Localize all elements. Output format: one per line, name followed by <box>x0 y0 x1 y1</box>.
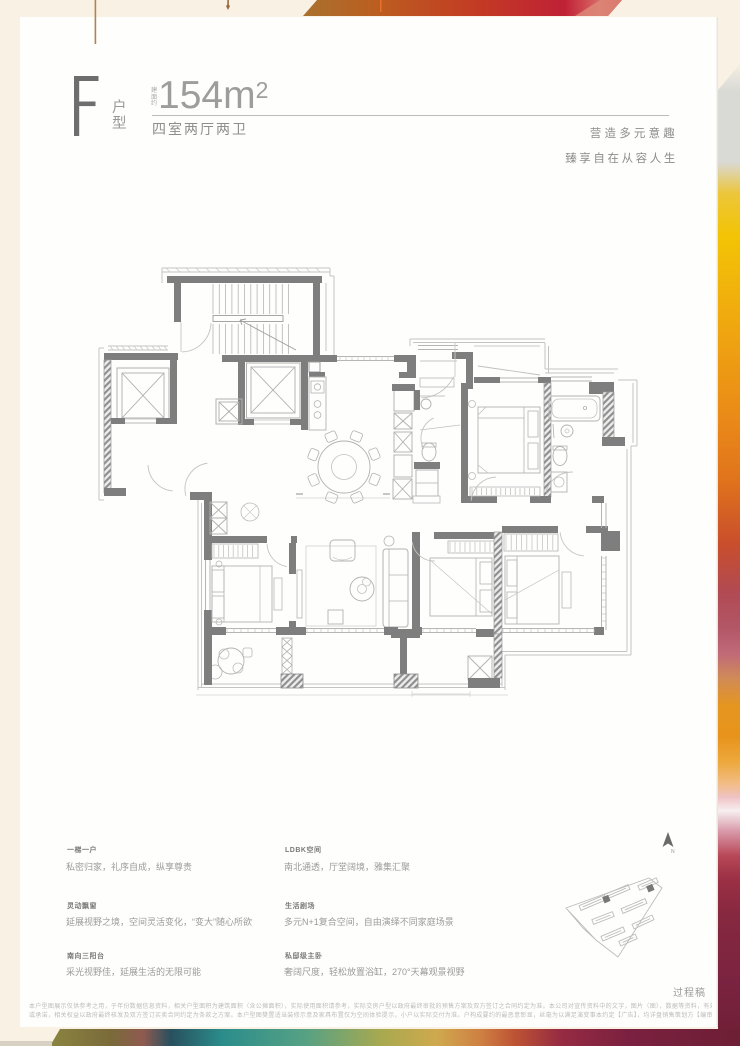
svg-text:N: N <box>671 849 675 855</box>
